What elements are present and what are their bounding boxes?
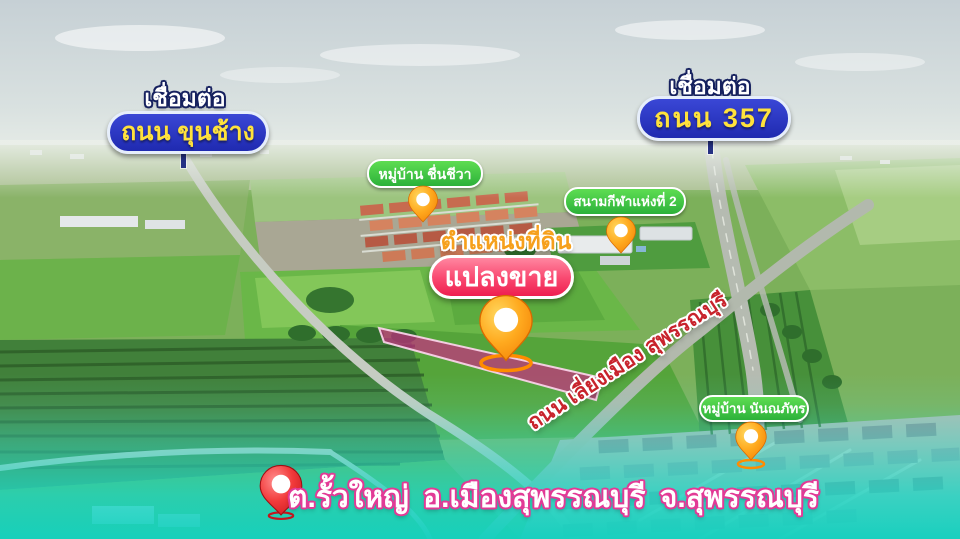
- connector-label-left: เชื่อมต่อ: [100, 86, 270, 111]
- sale-plot-badge-text: แปลงขาย: [445, 264, 559, 291]
- road-sign-357-text: ถนน 357: [654, 105, 774, 132]
- village-label-nannaphat: หมู่บ้าน นันณภัทร: [699, 395, 809, 422]
- stadium-label-text: สนามกีฬาแห่งที่ 2: [573, 195, 676, 209]
- map-pin-stadium-icon: [606, 216, 636, 254]
- address-caption: ต.รั้วใหญ่ อ.เมืองสุพรรณบุรี จ.สุพรรณบุร…: [288, 480, 744, 516]
- village-label-chuenchiwa: หมู่บ้าน ชื่นชีวา: [367, 159, 483, 188]
- stadium-label: สนามกีฬาแห่งที่ 2: [564, 187, 686, 216]
- road-sign-khunchang: ถนน ขุนช้าง: [107, 111, 269, 154]
- road-sign-357: ถนน 357: [637, 96, 791, 141]
- village-label-nannaphat-text: หมู่บ้าน นันณภัทร: [703, 402, 806, 416]
- village-label-chuenchiwa-text: หมู่บ้าน ชื่นชีวา: [379, 167, 472, 181]
- land-sale-aerial-ad: เชื่อมต่อ ถนน ขุนช้าง เชื่อมต่อ ถนน 357 …: [0, 0, 960, 539]
- map-pin-nannaphat-icon: [735, 421, 767, 461]
- road-sign-khunchang-text: ถนน ขุนช้าง: [121, 120, 255, 145]
- map-pin-sale-plot-icon: [479, 293, 533, 363]
- map-pin-chuenchiwa-icon: [408, 185, 438, 223]
- land-position-caption: ตำแหน่งที่ดิน: [420, 228, 592, 254]
